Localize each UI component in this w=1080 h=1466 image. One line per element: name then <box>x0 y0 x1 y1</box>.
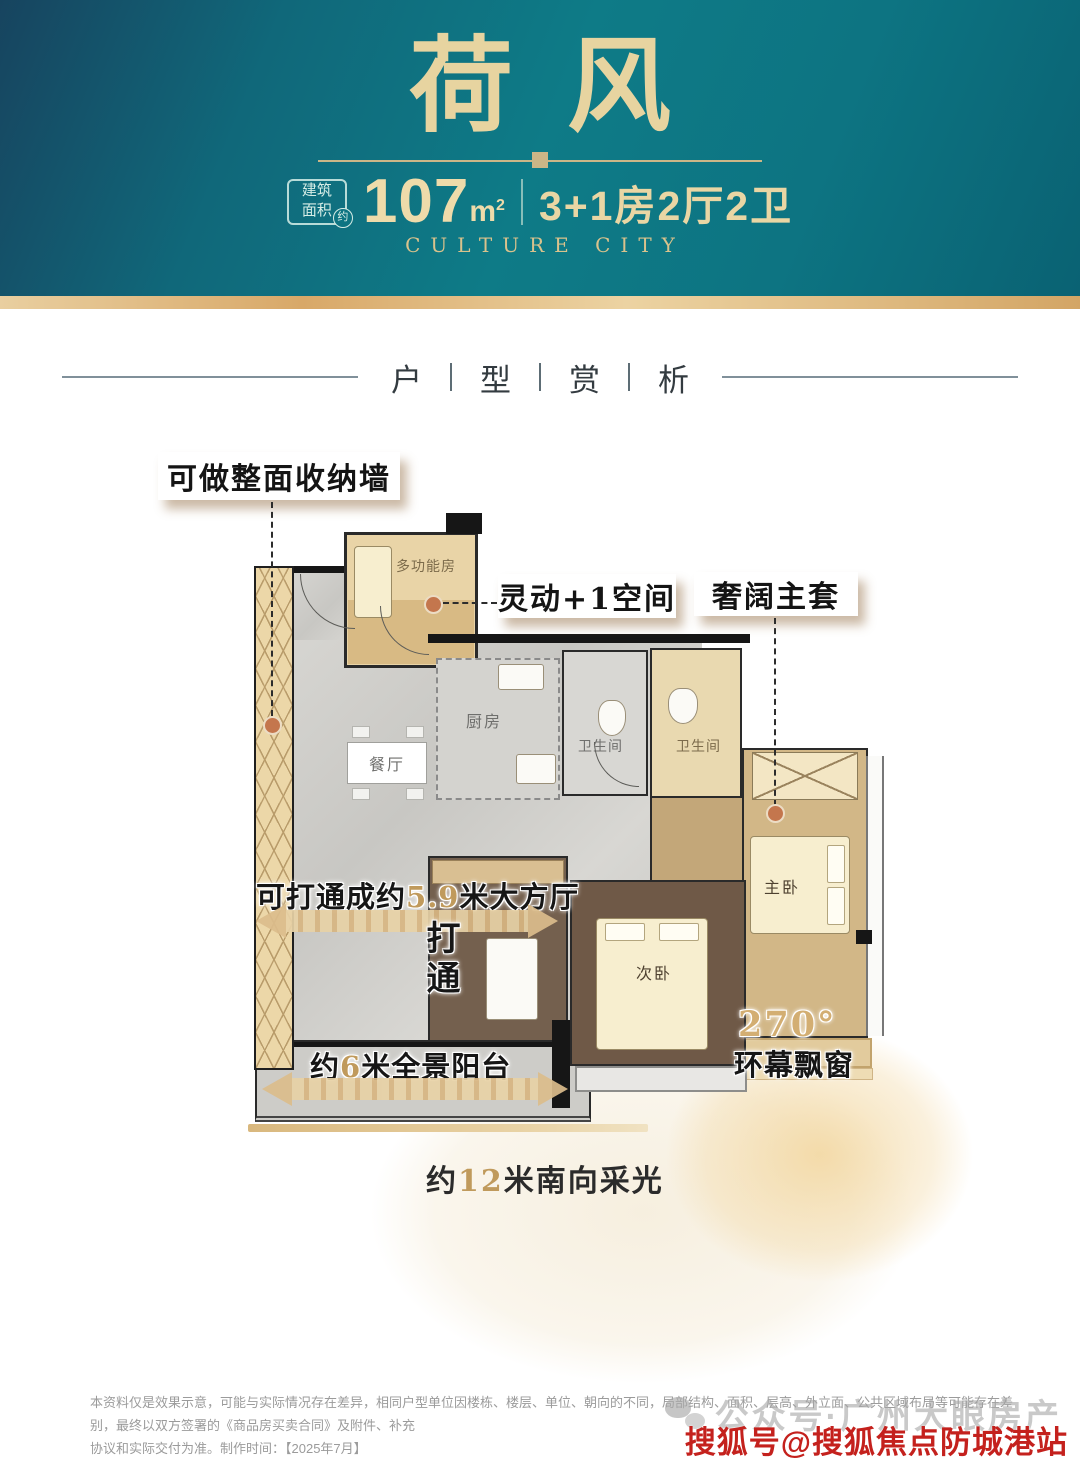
area-value: 107 <box>363 173 469 232</box>
subtitle-en: CULTURE CITY <box>0 233 1080 257</box>
header-gold-strip <box>0 296 1080 309</box>
area-unit-sup: 2 <box>496 197 505 214</box>
area-unit-base: m <box>469 195 496 228</box>
section-char: 赏 <box>569 355 600 400</box>
chair-row <box>352 726 424 738</box>
note-through: 打通 <box>416 920 465 1000</box>
callout-storage-wall: 可做整面收纳墙 <box>158 452 400 500</box>
note-bay-degree: 270° <box>738 1004 837 1045</box>
spec-row: 建筑 面积 约 107 m2 3+1房2厅2卫 <box>0 174 1080 230</box>
wardrobe-symbol <box>752 752 858 800</box>
title-divider-square <box>532 152 548 168</box>
area-unit: m2 <box>469 195 505 229</box>
bay-window-right <box>866 756 884 1036</box>
storage-wall-strip <box>254 566 294 1070</box>
callout-master-suite: 奢阔主套 <box>694 572 858 616</box>
spec-divider <box>521 179 523 225</box>
watermark-sohu: 搜狐号@搜狐焦点防城港站 <box>685 1417 1068 1462</box>
section-line-left <box>62 376 358 378</box>
bathroom-2 <box>650 648 742 798</box>
poster-page: 荷风 建筑 面积 约 107 m2 3+1房2厅2卫 CULTURE CITY … <box>0 0 1080 1466</box>
note-bay-name: 环幕飘窗 <box>734 1042 854 1084</box>
sink-symbol <box>498 664 544 690</box>
room-label-dining: 餐厅 <box>369 751 405 775</box>
section-separator <box>539 363 541 391</box>
note-light-prefix: 约 <box>426 1164 458 1199</box>
callout-connector <box>443 602 497 604</box>
callout-connector <box>774 618 776 806</box>
section-line-right <box>722 376 1018 378</box>
room-label-master: 主卧 <box>764 874 800 898</box>
section-char: 析 <box>658 355 689 400</box>
layout-spec: 3+1房2厅2卫 <box>539 172 793 232</box>
callout-dot <box>766 804 785 823</box>
note-south-light: 约12米南向采光 <box>426 1156 664 1200</box>
note-light-value: 12 <box>458 1164 504 1199</box>
wall-pier <box>446 513 482 534</box>
section-char: 型 <box>480 355 511 400</box>
wall-top <box>428 634 750 643</box>
room-label-bath2: 卫生间 <box>676 736 721 756</box>
page-title: 荷风 <box>0 30 1080 142</box>
span-arrow-balcony <box>262 1072 568 1106</box>
window-sill <box>575 1066 747 1092</box>
callout-connector <box>271 502 273 716</box>
area-box: 建筑 面积 约 <box>287 179 347 225</box>
wall-pier <box>856 930 872 944</box>
callout-flex-space: 灵动+1空间 <box>498 574 676 618</box>
section-title: 户 型 赏 析 <box>340 356 740 398</box>
area-number: 107 m2 <box>363 173 505 232</box>
toilet-symbol <box>668 688 698 724</box>
room-label-secondary: 次卧 <box>636 960 672 984</box>
room-label-multifunction: 多功能房 <box>396 556 456 576</box>
area-approx-badge: 约 <box>333 208 353 228</box>
area-box-line1: 建筑 <box>289 181 345 201</box>
dining-table: 餐厅 <box>347 742 427 784</box>
desk-symbol <box>486 938 538 1020</box>
section-char: 户 <box>391 355 422 400</box>
callout-dot <box>424 595 443 614</box>
section-separator <box>628 363 630 391</box>
callout-dot <box>263 716 282 735</box>
note-light-suffix: 米南向采光 <box>504 1164 664 1199</box>
toilet-symbol <box>598 700 626 736</box>
plan-gold-baseline <box>248 1124 648 1132</box>
chair-row <box>352 788 424 800</box>
bed-symbol <box>596 918 708 1050</box>
room-label-kitchen: 厨房 <box>466 708 502 732</box>
stove-symbol <box>516 754 556 784</box>
section-separator <box>450 363 452 391</box>
span-arrow-open <box>256 904 558 938</box>
